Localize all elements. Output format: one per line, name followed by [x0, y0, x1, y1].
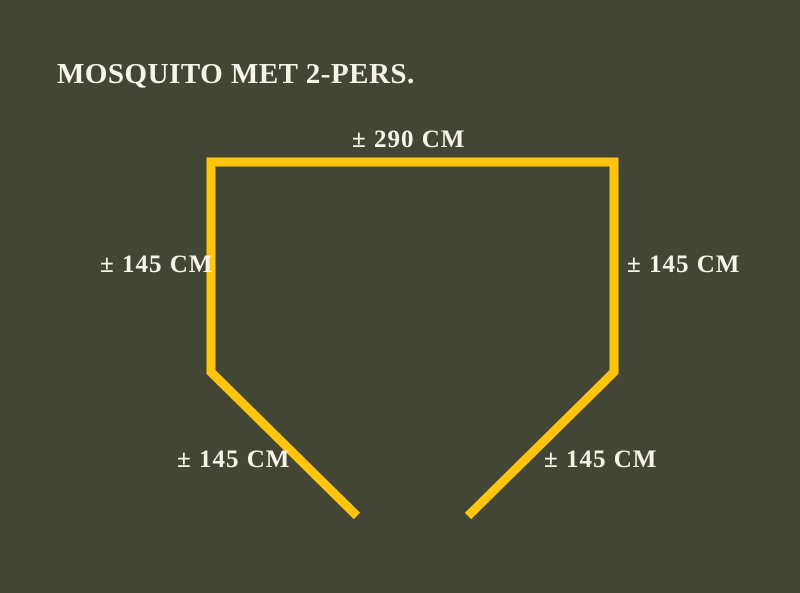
- tent-outline-drawing: [0, 0, 800, 593]
- dimension-label-left-side: ± 145 CM: [100, 251, 213, 279]
- dimension-label-right-side: ± 145 CM: [627, 251, 740, 279]
- dimension-label-bottom-right-slope: ± 145 CM: [544, 446, 657, 474]
- diagram-canvas: MOSQUITO MET 2-PERS. ± 290 CM ± 145 CM ±…: [0, 0, 800, 593]
- dimension-label-top-width: ± 290 CM: [352, 126, 465, 154]
- dimension-label-bottom-left-slope: ± 145 CM: [177, 446, 290, 474]
